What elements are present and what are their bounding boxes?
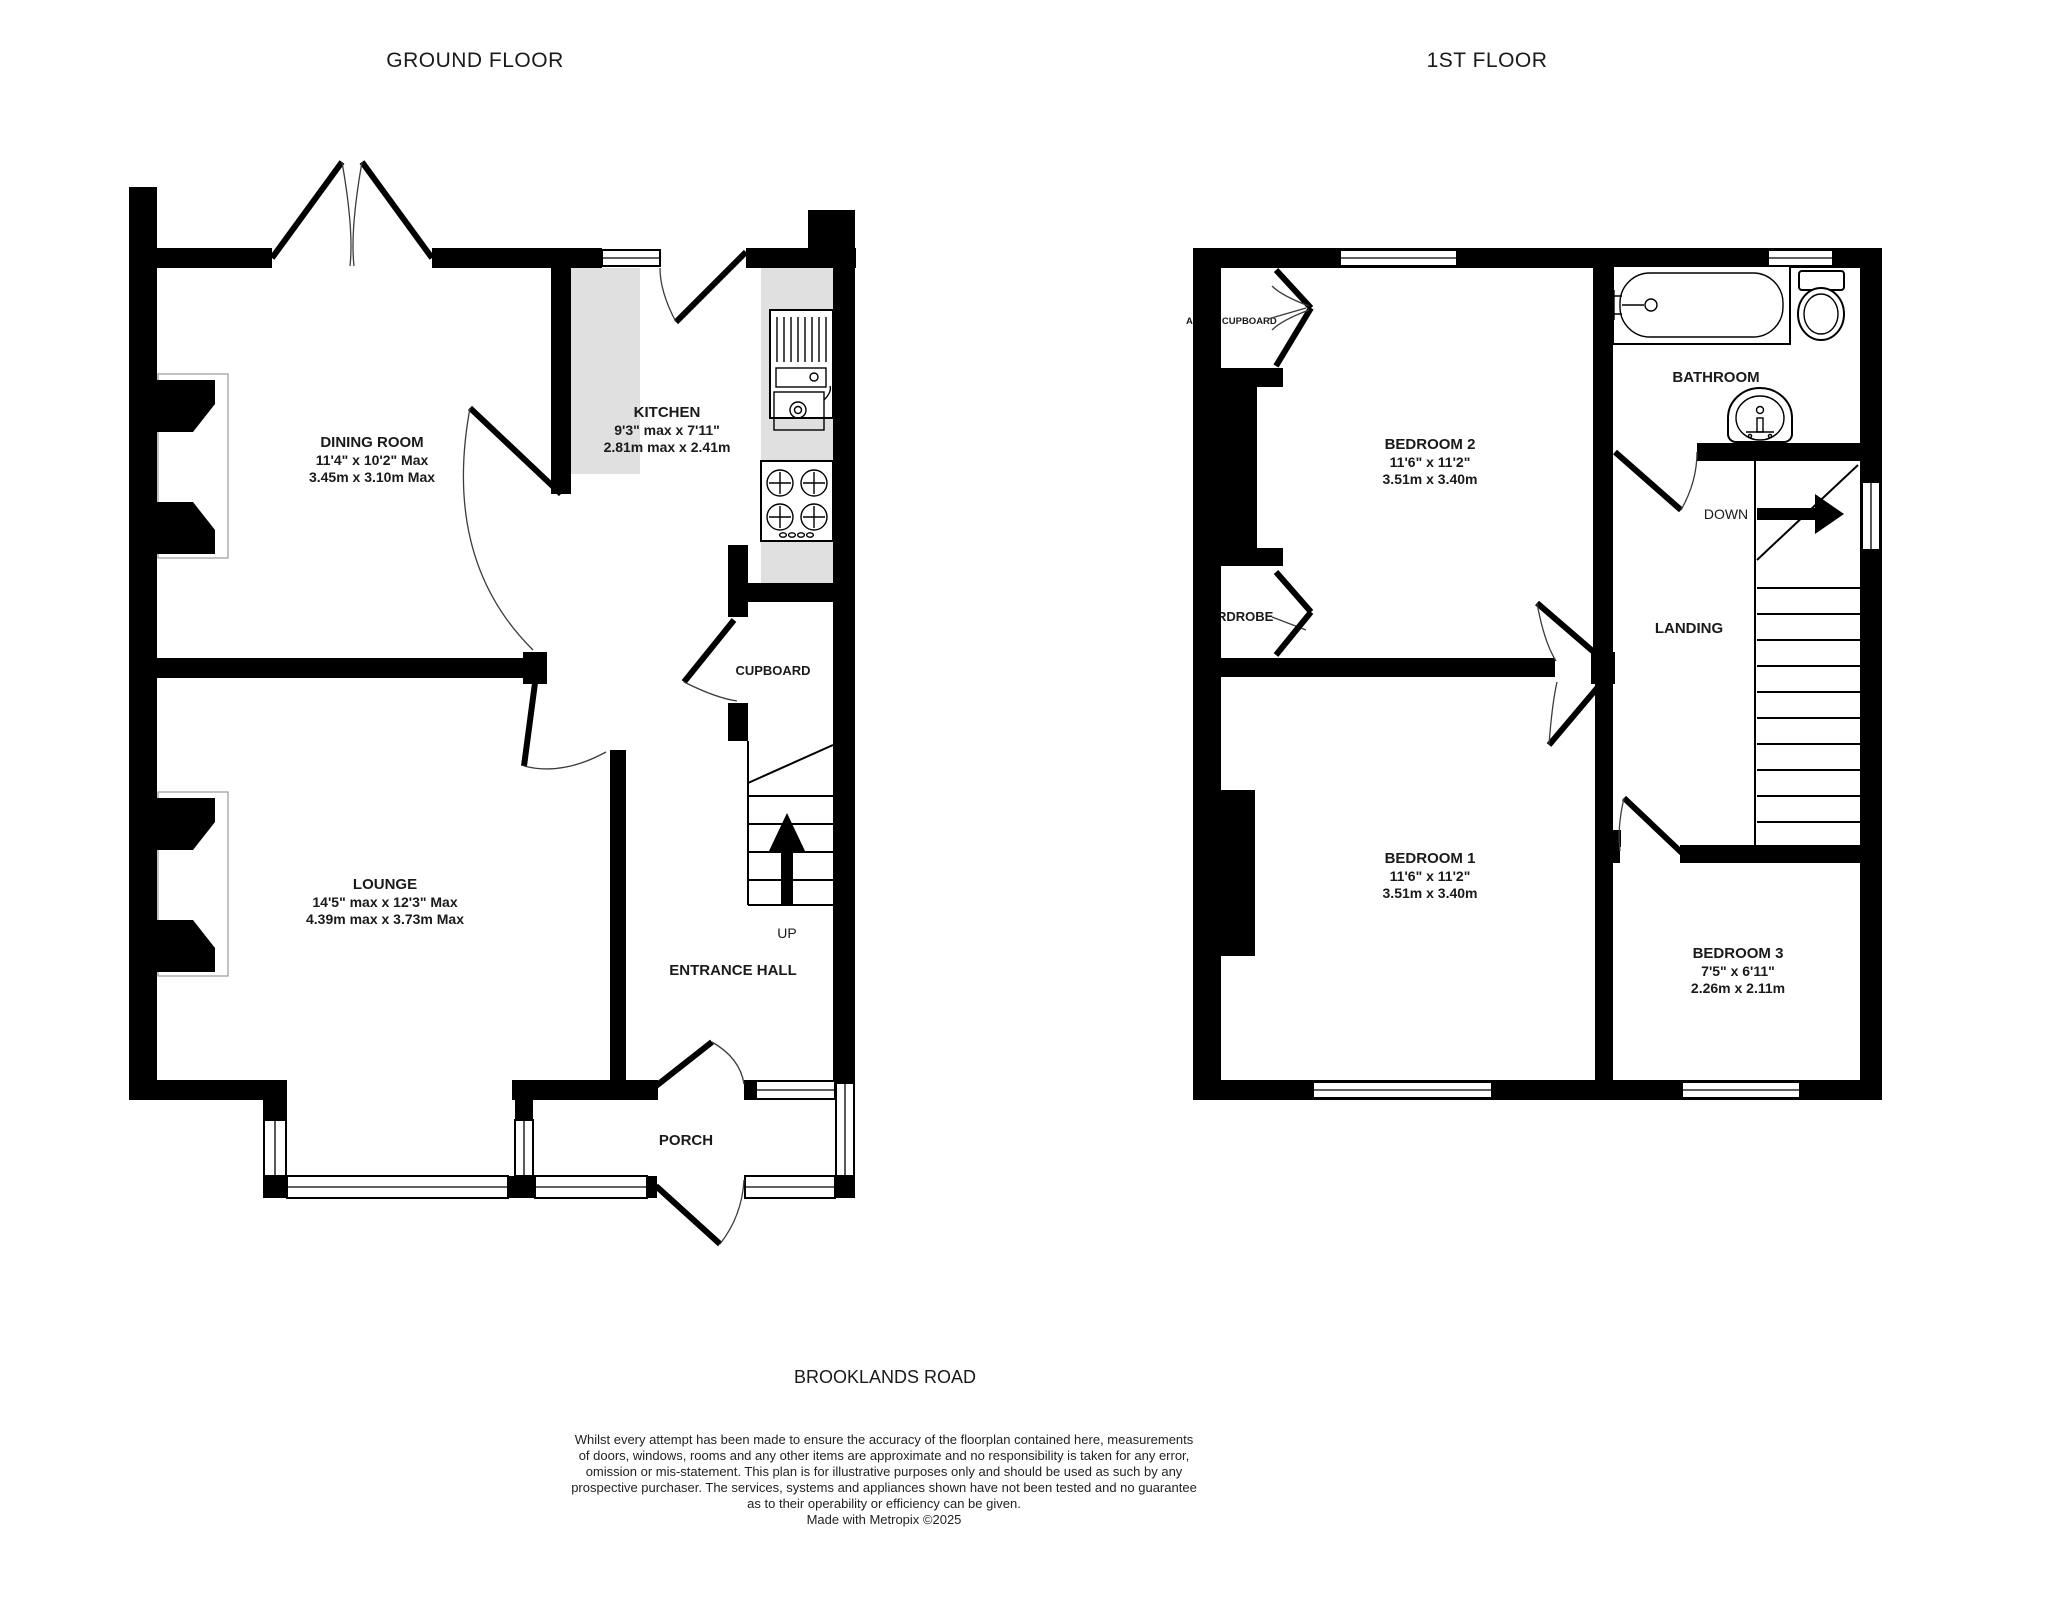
ground-floor-plan: DINING ROOM 11'4" x 10'2" Max 3.45m x 3.… xyxy=(129,162,856,1244)
floorplan-page: GROUND FLOOR 1ST FLOOR xyxy=(0,0,2048,1605)
bathroom-label: BATHROOM xyxy=(1672,369,1759,386)
first-floor-stairs xyxy=(1755,461,1860,845)
bedroom1-imperial: 11'6" x 11'2" xyxy=(1390,868,1471,884)
down-label: DOWN xyxy=(1704,506,1748,522)
address-label: BROOKLANDS ROAD xyxy=(794,1367,976,1387)
toilet-icon xyxy=(1798,271,1844,340)
first-floor-plan: AIRING CUPBOARD WARDROBE xyxy=(1186,248,1882,1100)
first-floor-doors xyxy=(1272,270,1697,853)
floorplan-drawing: GROUND FLOOR 1ST FLOOR xyxy=(0,0,2048,1605)
wardrobe-doors xyxy=(1276,572,1311,655)
landing-window xyxy=(1862,482,1880,550)
ground-floor-doors xyxy=(272,162,746,1244)
kitchen-imperial: 9'3" max x 7'11" xyxy=(614,422,720,438)
kitchen-window xyxy=(602,250,660,266)
disclaimer-line-5: as to their operability or efficiency ca… xyxy=(747,1496,1021,1511)
bedroom3-door xyxy=(1619,798,1682,853)
first-floor-labels: BEDROOM 2 11'6" x 11'2" 3.51m x 3.40m BA… xyxy=(1383,369,1786,996)
porch-window-front xyxy=(535,1176,647,1198)
made-with-label: Made with Metropix ©2025 xyxy=(807,1512,962,1527)
dining-room-metric: 3.45m x 3.10m Max xyxy=(309,469,435,485)
dining-french-doors xyxy=(272,162,432,266)
disclaimer-line-1: Whilst every attempt has been made to en… xyxy=(575,1432,1194,1447)
dining-room-imperial: 11'4" x 10'2" Max xyxy=(316,452,429,468)
airing-cupboard-doors xyxy=(1272,270,1311,366)
kitchen-back-door xyxy=(660,252,746,322)
lounge-bay-window-left xyxy=(264,1120,286,1176)
down-arrow-icon xyxy=(1757,494,1844,534)
kitchen-metric: 2.81m max x 2.41m xyxy=(604,439,731,455)
porch-window-front-right xyxy=(745,1176,835,1198)
bedroom2-window xyxy=(1340,250,1457,266)
bedroom3-imperial: 7'5" x 6'11" xyxy=(1701,963,1775,979)
bathroom-window xyxy=(1768,250,1833,266)
bedroom2-label: BEDROOM 2 xyxy=(1385,436,1476,453)
bathroom-door xyxy=(1615,452,1697,510)
hob-icon xyxy=(761,461,833,541)
lounge-bay-window-right xyxy=(515,1120,533,1176)
bedroom1-door xyxy=(1549,681,1603,745)
first-floor-title: 1ST FLOOR xyxy=(1427,49,1548,72)
disclaimer-line-2: of doors, windows, rooms and any other i… xyxy=(579,1448,1190,1463)
disclaimer-line-3: omission or mis-statement. This plan is … xyxy=(586,1464,1183,1479)
bath-icon xyxy=(1613,266,1790,344)
dining-hall-door xyxy=(463,408,561,650)
ground-floor-labels: DINING ROOM 11'4" x 10'2" Max 3.45m x 3.… xyxy=(306,404,811,1149)
bedroom1-window xyxy=(1313,1082,1492,1098)
hall-window-front xyxy=(756,1081,835,1099)
bathroom-sink-icon xyxy=(1728,388,1792,442)
bedroom2-imperial: 11'6" x 11'2" xyxy=(1390,454,1471,470)
bedroom2-metric: 3.51m x 3.40m xyxy=(1383,471,1478,487)
ground-floor-walls xyxy=(129,187,856,1198)
lounge-label: LOUNGE xyxy=(353,876,417,893)
kitchen-sink-icon xyxy=(770,310,833,430)
bedroom3-window xyxy=(1682,1082,1800,1098)
lounge-bay-window-front xyxy=(287,1176,508,1198)
ground-floor-stairs xyxy=(748,741,833,905)
footer: BROOKLANDS ROAD Whilst every attempt has… xyxy=(571,1367,1197,1527)
dining-room-label: DINING ROOM xyxy=(320,434,423,451)
first-floor-walls xyxy=(1193,248,1882,1100)
entrance-hall-label: ENTRANCE HALL xyxy=(669,962,797,979)
landing-label: LANDING xyxy=(1655,620,1723,637)
bedroom1-metric: 3.51m x 3.40m xyxy=(1383,885,1478,901)
lounge-imperial: 14'5" max x 12'3" Max xyxy=(312,894,457,910)
disclaimer-line-4: prospective purchaser. The services, sys… xyxy=(571,1480,1197,1495)
up-label: UP xyxy=(777,925,796,941)
lounge-metric: 4.39m max x 3.73m Max xyxy=(306,911,464,927)
bedroom1-label: BEDROOM 1 xyxy=(1385,850,1476,867)
front-door xyxy=(656,1180,744,1244)
porch-hall-door xyxy=(656,1042,744,1086)
kitchen-label: KITCHEN xyxy=(634,404,701,421)
lounge-door xyxy=(524,683,606,769)
ground-floor-title: GROUND FLOOR xyxy=(386,49,564,72)
cupboard-label: CUPBOARD xyxy=(735,663,810,678)
cupboard-door xyxy=(684,620,737,701)
bedroom3-label: BEDROOM 3 xyxy=(1693,945,1784,962)
porch-window-side xyxy=(836,1083,854,1176)
bedroom3-metric: 2.26m x 2.11m xyxy=(1691,980,1785,996)
up-arrow-icon xyxy=(769,813,805,905)
porch-label: PORCH xyxy=(659,1132,713,1149)
